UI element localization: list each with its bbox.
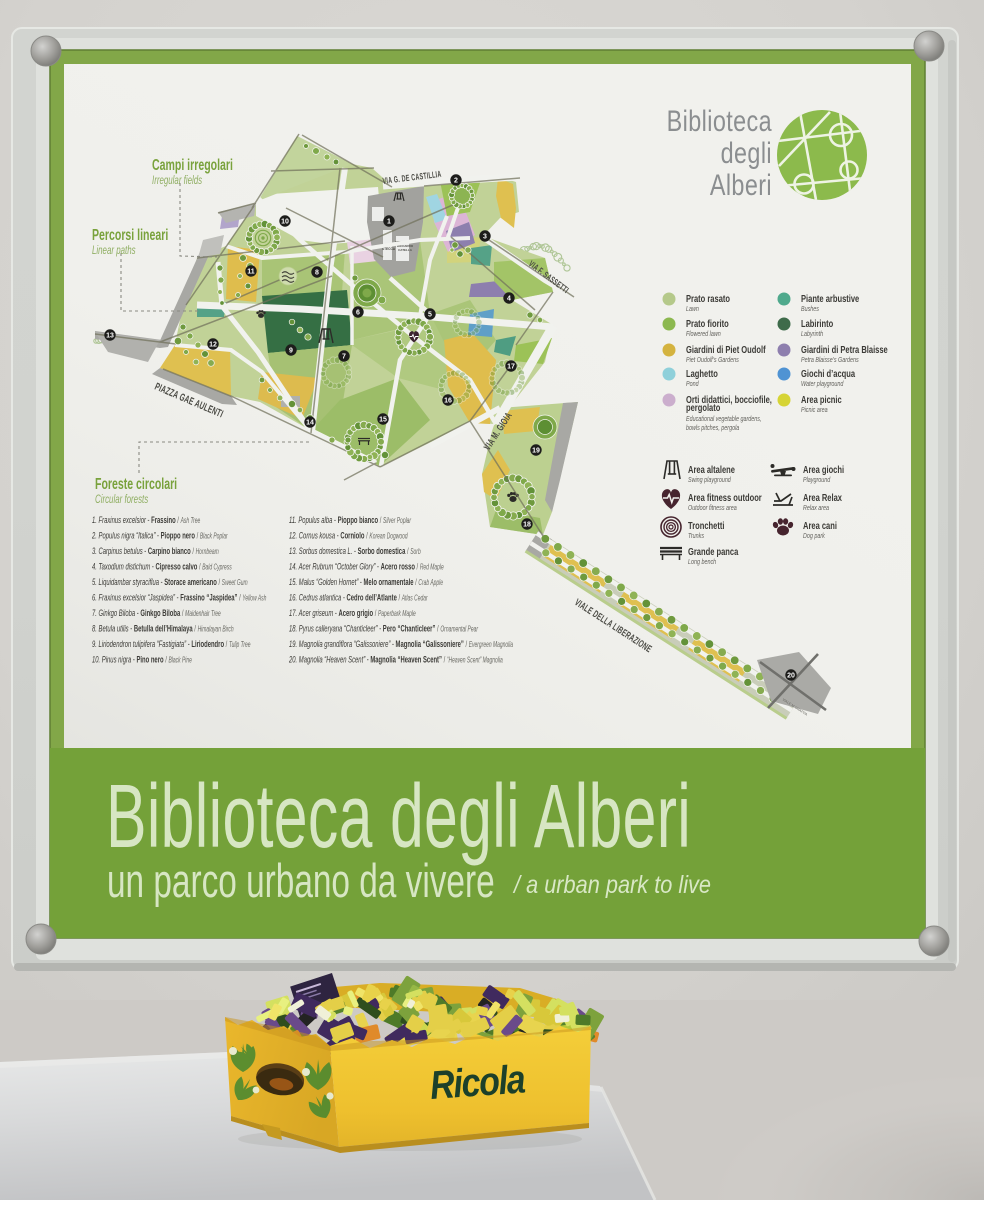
svg-text:Educational vegetable gardens,: Educational vegetable gardens, (686, 415, 762, 423)
svg-text:Area cani: Area cani (803, 520, 837, 531)
svg-text:5. Liquidambar styraciflua - S: 5. Liquidambar styraciflua - Storace ame… (92, 577, 248, 588)
svg-text:18: 18 (523, 521, 531, 528)
svg-text:Linear paths: Linear paths (92, 245, 136, 258)
svg-text:Alberi: Alberi (710, 168, 772, 201)
svg-text:Piante arbustive: Piante arbustive (801, 293, 859, 304)
svg-text:3. Carpinus betulus - Carpino: 3. Carpinus betulus - Carpino bianco / H… (92, 546, 219, 557)
svg-text:Foreste circolari: Foreste circolari (95, 475, 177, 493)
svg-text:Giardini di Piet Oudolf: Giardini di Piet Oudolf (686, 344, 766, 355)
svg-text:pergolato: pergolato (686, 402, 721, 413)
svg-text:Labirinto: Labirinto (801, 318, 834, 329)
svg-text:7: 7 (342, 353, 346, 360)
svg-text:17. Acer griseum - Acero grigi: 17. Acer griseum - Acero grigio / Paperb… (289, 608, 416, 619)
svg-text:Flowered lawn: Flowered lawn (686, 330, 721, 338)
svg-text:Area Relax: Area Relax (803, 492, 843, 503)
svg-text:20. Magnolia “Heaven Scent” -: 20. Magnolia “Heaven Scent” - Magnolia “… (288, 654, 503, 665)
svg-text:Bushes: Bushes (801, 305, 820, 313)
svg-text:Swing playground: Swing playground (688, 476, 731, 484)
svg-text:Piet Oudolf’s Gardens: Piet Oudolf’s Gardens (686, 356, 739, 364)
svg-text:Pond: Pond (686, 380, 699, 388)
svg-text:Picnic area: Picnic area (801, 406, 828, 414)
svg-text:Laghetto: Laghetto (686, 368, 718, 379)
svg-text:4: 4 (507, 295, 511, 302)
svg-text:19: 19 (532, 447, 540, 454)
svg-text:Campi irregolari: Campi irregolari (152, 156, 233, 174)
svg-text:CATELLA: CATELLA (398, 248, 413, 252)
svg-text:12: 12 (209, 341, 217, 348)
svg-text:Prato rasato: Prato rasato (686, 293, 730, 304)
svg-text:8. Betula utilis - Betulla del: 8. Betula utilis - Betulla dell’Himalaya… (92, 623, 234, 634)
svg-text:11. Populus alba - Pioppo bian: 11. Populus alba - Pioppo bianco / Silve… (289, 515, 412, 526)
svg-text:Biblioteca degli Alberi: Biblioteca degli Alberi (106, 766, 691, 867)
svg-text:15. Malus “Golden Hornet” - Me: 15. Malus “Golden Hornet” - Melo ornamen… (289, 577, 443, 588)
svg-text:Trunks: Trunks (688, 532, 705, 540)
svg-text:14: 14 (306, 419, 314, 426)
svg-text:1. Fraxinus excelsior - Frassi: 1. Fraxinus excelsior - Frassino / Ash T… (92, 515, 201, 526)
svg-text:20: 20 (787, 672, 795, 679)
svg-text:Area fitness outdoor: Area fitness outdoor (688, 492, 762, 503)
svg-text:Dog park: Dog park (803, 532, 825, 540)
svg-text:Area picnic: Area picnic (801, 394, 842, 405)
svg-text:Irregular fields: Irregular fields (152, 175, 202, 188)
svg-text:11: 11 (247, 268, 255, 275)
svg-text:14. Acer Rubrum “October Glory: 14. Acer Rubrum “October Glory” - Acero … (289, 561, 444, 572)
svg-text:bowls pitches, pergola: bowls pitches, pergola (686, 424, 740, 432)
svg-text:1: 1 (387, 218, 391, 225)
svg-text:10. Pinus nigra - Pino nero /: 10. Pinus nigra - Pino nero / Black Pine (92, 654, 192, 665)
svg-text:17: 17 (507, 363, 515, 370)
svg-text:3: 3 (483, 233, 487, 240)
svg-text:Biblioteca: Biblioteca (667, 104, 772, 137)
svg-text:16: 16 (444, 397, 452, 404)
svg-text:Long bench: Long bench (688, 558, 716, 566)
svg-text:Ricola: Ricola (428, 1056, 526, 1108)
svg-text:13: 13 (106, 332, 114, 339)
svg-text:Outdoor fitness area: Outdoor fitness area (688, 504, 737, 512)
svg-text:Circular forests: Circular forests (95, 494, 148, 507)
svg-text:12. Cornus kousa - Corniolo /: 12. Cornus kousa - Corniolo / Korean Dog… (289, 530, 408, 541)
svg-text:Petra Blaisse’s Gardens: Petra Blaisse’s Gardens (801, 356, 859, 364)
svg-text:Prato fiorito: Prato fiorito (686, 318, 729, 329)
svg-text:19. Magnolia grandiflora “Gali: 19. Magnolia grandiflora “Galissoniere” … (289, 639, 513, 650)
svg-text:Lawn: Lawn (686, 305, 699, 313)
svg-text:2. Populus nigra “Italica” - P: 2. Populus nigra “Italica” - Pioppo nero… (91, 530, 228, 541)
svg-text:13. Sorbus domestica L. - Sorb: 13. Sorbus domestica L. - Sorbo domestic… (289, 546, 421, 557)
svg-text:Playground: Playground (803, 476, 831, 484)
svg-text:degli: degli (721, 136, 772, 169)
svg-text:Area giochi: Area giochi (803, 464, 844, 475)
svg-text:6: 6 (356, 309, 360, 316)
svg-text:9. Liriodendron tulipifera “Fa: 9. Liriodendron tulipifera “Fastigiata” … (92, 639, 251, 650)
svg-text:16. Cedrus atlantica - Cedro d: 16. Cedrus atlantica - Cedro dell’Atlant… (289, 592, 428, 603)
svg-text:/ a urban park to live: / a urban park to live (512, 871, 711, 899)
svg-text:Percorsi lineari: Percorsi lineari (92, 226, 168, 244)
svg-text:2: 2 (454, 177, 458, 184)
svg-text:Relax area: Relax area (803, 504, 829, 512)
svg-text:8: 8 (315, 269, 319, 276)
svg-text:6. Fraxinus excelsior “Jaspide: 6. Fraxinus excelsior “Jaspidea” - Frass… (92, 592, 267, 603)
svg-text:Giardini di Petra Blaisse: Giardini di Petra Blaisse (801, 344, 888, 355)
svg-text:Water playground: Water playground (801, 380, 844, 388)
svg-text:4. Taxodium distichum - Cipres: 4. Taxodium distichum - Cipresso calvo /… (92, 561, 232, 572)
svg-text:Labyrinth: Labyrinth (801, 330, 823, 338)
svg-text:un parco urbano da vivere: un parco urbano da vivere (107, 854, 495, 907)
svg-text:7. Ginkgo Biloba - Ginkgo Bilo: 7. Ginkgo Biloba - Ginkgo Biloba / Maide… (92, 608, 221, 619)
svg-text:Grande panca: Grande panca (688, 546, 739, 557)
svg-text:Giochi d’acqua: Giochi d’acqua (801, 368, 856, 379)
svg-text:Tronchetti: Tronchetti (688, 520, 724, 531)
svg-text:15: 15 (379, 416, 387, 423)
svg-text:Area altalene: Area altalene (688, 464, 735, 475)
svg-text:10: 10 (281, 218, 289, 225)
svg-text:18. Pyrus calleryana “Chanticl: 18. Pyrus calleryana “Chanticleer” - Per… (289, 623, 479, 634)
svg-text:5: 5 (428, 311, 432, 318)
svg-text:9: 9 (289, 347, 293, 354)
